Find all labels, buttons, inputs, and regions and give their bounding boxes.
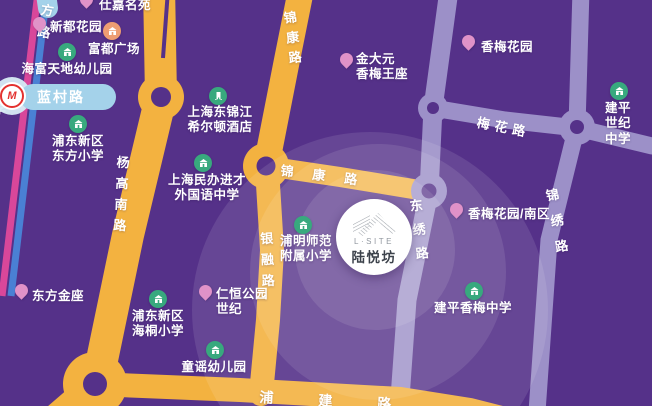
- project-logo-icon: [350, 209, 398, 236]
- school-icon: [614, 86, 625, 96]
- project-name: 陆悦坊: [352, 246, 397, 266]
- metro-line-pink: [2, 0, 38, 296]
- poi-label: 上海民办进才 外国语中学: [168, 173, 246, 204]
- poi-puming-primary[interactable]: [294, 216, 312, 234]
- project-logo-text: L·SITE: [354, 237, 394, 246]
- poi-label: 浦东新区 海桐小学: [132, 309, 184, 340]
- poi-haitong-primary[interactable]: [149, 290, 167, 308]
- poi-label: 海富天地幼儿园: [21, 62, 112, 77]
- road-jinkang-north: [267, 0, 301, 162]
- school-icon: [153, 294, 164, 304]
- road-band-partial: [44, 0, 48, 8]
- poi-label: 建平香梅中学: [434, 301, 512, 316]
- poi-label: 浦明师范 附属小学: [280, 234, 332, 265]
- station-name: 蓝村路: [20, 87, 85, 107]
- poi-dongfang-primary[interactable]: [69, 115, 87, 133]
- poi-label: 仁恒公园 世纪: [216, 287, 268, 318]
- poi-label: 东方金座: [32, 289, 84, 304]
- poi-jianping-shiji-school[interactable]: [610, 82, 628, 100]
- poi-label: 金大元 香梅王座: [356, 52, 408, 83]
- poi-label: 浦东新区 东方小学: [52, 134, 104, 165]
- project-marker[interactable]: L·SITE 陆悦坊: [336, 199, 412, 275]
- poi-label: 新都花园: [50, 20, 102, 35]
- poi-haifu-kindergarten[interactable]: [58, 43, 76, 61]
- poi-label: 仕嘉名苑: [99, 0, 151, 13]
- poi-label: 香梅花园: [481, 40, 533, 55]
- poi-label: 建平世纪中学: [601, 101, 635, 147]
- poi-jincai-foreign-school[interactable]: [194, 154, 212, 172]
- metro-logo-icon: M: [0, 84, 24, 108]
- school-icon: [469, 286, 480, 296]
- school-icon: [73, 119, 84, 129]
- poi-tongyao-kindergarten[interactable]: [206, 341, 224, 359]
- poi-label: 上海东锦江 希尔顿酒店: [187, 105, 252, 136]
- map-canvas[interactable]: 方路 学 锦康路 锦康路 杨高南路 银融路 浦建路 梅花路 锦绣路 东绣路 蓝村…: [0, 0, 652, 406]
- road-network: [0, 0, 652, 406]
- poi-label: 香梅花园/南区: [468, 207, 550, 222]
- building-icon: [107, 26, 118, 36]
- poi-hilton-hotel[interactable]: [209, 87, 227, 105]
- school-icon: [298, 220, 309, 230]
- school-icon: [62, 47, 73, 57]
- poi-jianping-xiangmei-school[interactable]: [465, 282, 483, 300]
- poi-fudu-plaza[interactable]: [103, 22, 121, 40]
- hotel-icon: [213, 91, 224, 101]
- school-icon: [210, 345, 221, 355]
- school-icon: [198, 158, 209, 168]
- poi-label: 富都广场: [88, 42, 140, 57]
- poi-label: 童谣幼儿园: [181, 360, 246, 375]
- station-band: 蓝村路: [20, 84, 116, 110]
